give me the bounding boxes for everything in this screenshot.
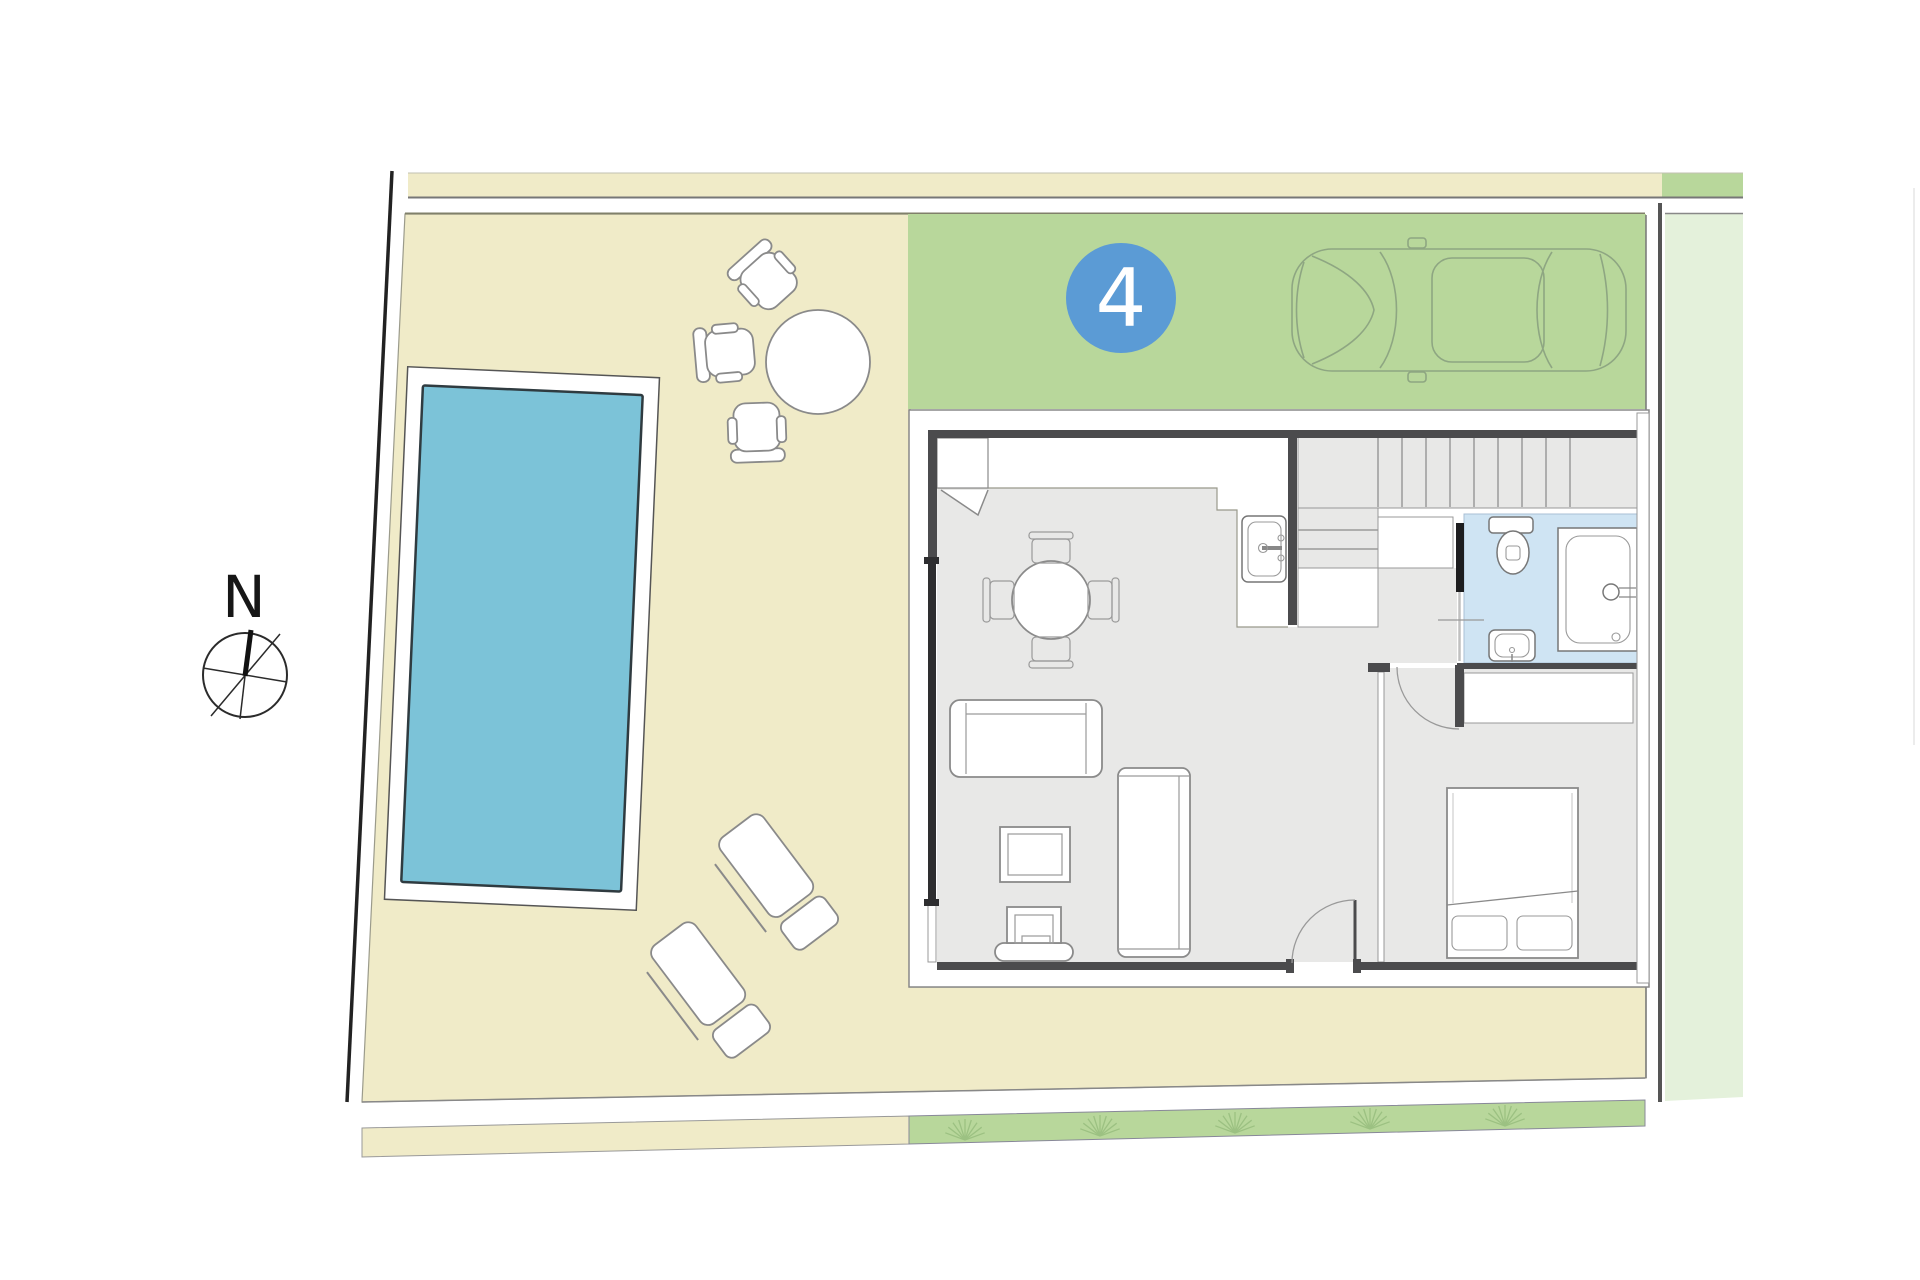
tall-cabinet bbox=[1118, 768, 1190, 957]
stair-winder bbox=[1298, 508, 1378, 568]
wall-bathroom-south bbox=[1457, 663, 1637, 669]
outdoor-chair bbox=[727, 402, 787, 463]
pool-water bbox=[401, 385, 642, 891]
outdoor-table bbox=[766, 310, 870, 414]
sidewalk-strip bbox=[408, 173, 1743, 198]
dining-table bbox=[1012, 561, 1090, 639]
pool bbox=[384, 367, 659, 910]
understairs-closet bbox=[1298, 568, 1378, 627]
wall-east bbox=[1637, 413, 1649, 983]
wash-basin bbox=[1489, 630, 1535, 662]
kitchen-sink bbox=[1242, 516, 1286, 582]
wall-south-left bbox=[937, 962, 1292, 970]
sliding-door-cap bbox=[924, 557, 939, 564]
unit-badge: 4 bbox=[1066, 243, 1176, 353]
double-bed bbox=[1447, 788, 1578, 958]
sofa bbox=[950, 700, 1102, 777]
bathroom-door-leaf bbox=[1456, 523, 1464, 592]
sliding-door-cap bbox=[924, 899, 939, 906]
wall-west-upper bbox=[928, 438, 937, 563]
side-green-band bbox=[1665, 213, 1743, 1101]
floor-plan-canvas: 4 N bbox=[0, 0, 1920, 1280]
wall-south-right bbox=[1357, 962, 1649, 970]
wall-stub bbox=[1368, 663, 1390, 672]
understairs-closet bbox=[1378, 517, 1453, 568]
wall-partition bbox=[1288, 438, 1297, 625]
site-plan: 4 N bbox=[0, 0, 1920, 1280]
wall-north bbox=[928, 430, 1649, 438]
pocket-door bbox=[937, 438, 988, 488]
door-jamb bbox=[1286, 959, 1294, 973]
tv-unit bbox=[995, 907, 1073, 961]
sliding-glass-door bbox=[928, 563, 936, 900]
bedroom-door-leaf bbox=[1455, 665, 1464, 727]
window-west bbox=[928, 900, 936, 962]
compass-north-label: N bbox=[222, 563, 265, 631]
wardrobe bbox=[1464, 673, 1633, 723]
unit-number: 4 bbox=[1096, 252, 1147, 345]
bathroom bbox=[1438, 514, 1637, 663]
coffee-table bbox=[1000, 827, 1070, 882]
driveway bbox=[908, 214, 1646, 409]
bedroom-wall bbox=[1378, 672, 1384, 962]
bathtub bbox=[1558, 528, 1637, 651]
